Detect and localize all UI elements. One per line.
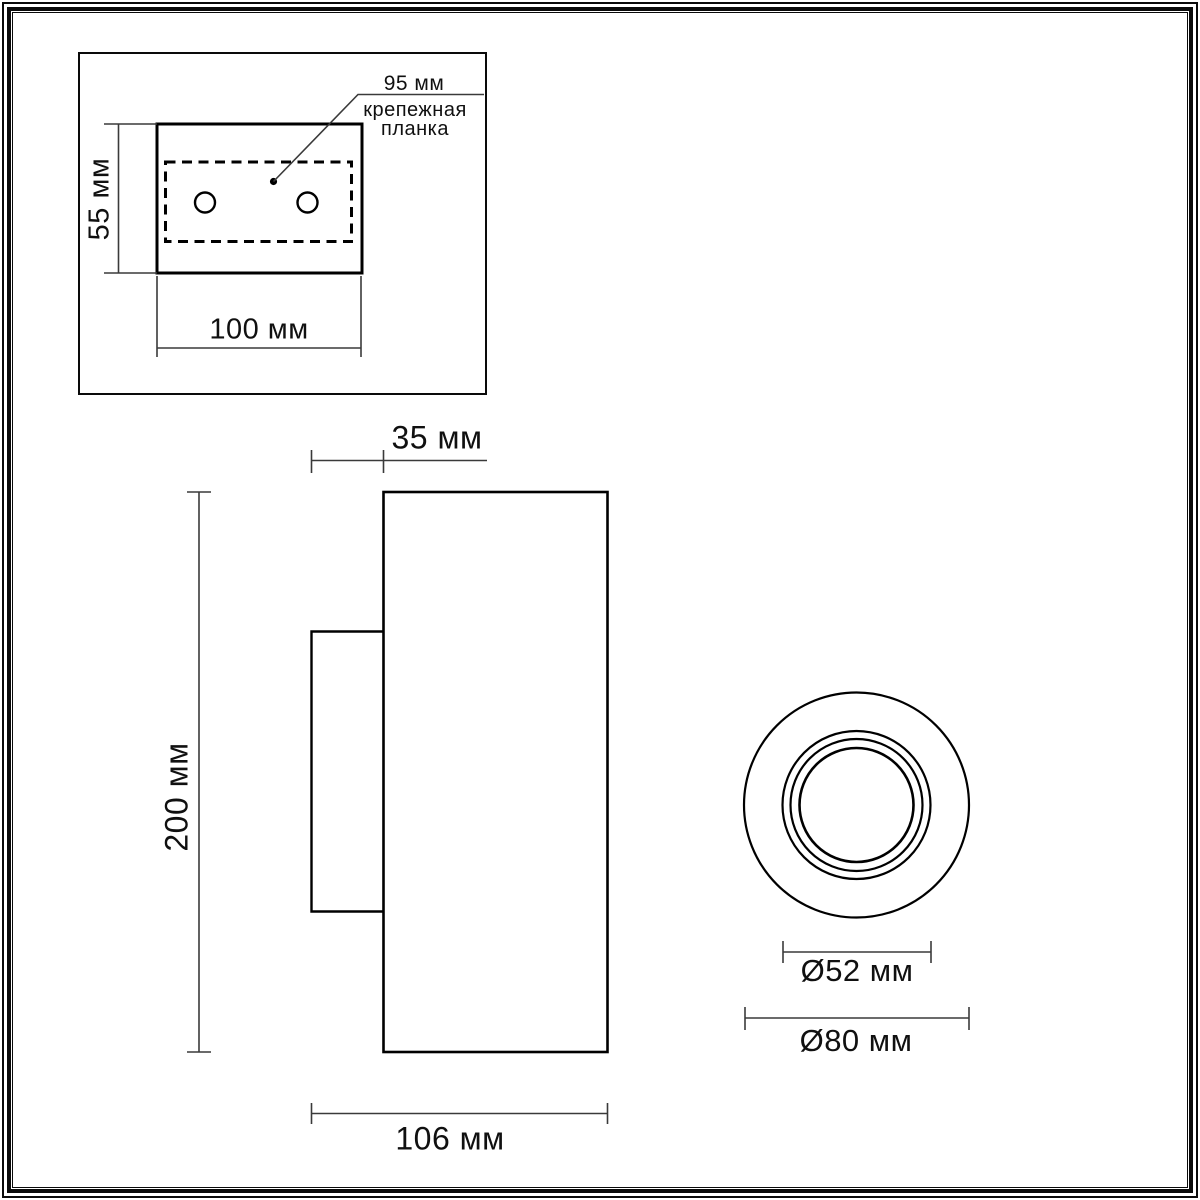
mounting-bar-dashed-outline	[166, 162, 352, 242]
mounting-plate-outline	[157, 124, 362, 273]
label-inner-diameter-52mm: Ø52 мм	[801, 953, 914, 989]
side-view	[187, 450, 608, 1124]
label-mounting-bar-line2: планка	[363, 120, 467, 139]
front-bezel-outer-circle	[783, 731, 931, 879]
label-body-depth-106mm: 106 мм	[395, 1121, 504, 1158]
side-body-outline	[384, 492, 608, 1052]
label-outer-diameter-80mm: Ø80 мм	[800, 1023, 913, 1059]
label-plate-height-55mm: 55 мм	[84, 158, 117, 241]
front-outer-circle	[744, 693, 969, 918]
label-bracket-depth-35mm: 35 мм	[392, 420, 483, 457]
screw-hole-right	[298, 193, 318, 213]
technical-drawing-page: 95 мм крепежная планка 55 мм 100 мм 35 м…	[0, 0, 1200, 1200]
side-bracket-outline	[312, 632, 384, 912]
screw-hole-left	[195, 193, 215, 213]
label-body-height-200mm: 200 мм	[159, 742, 196, 851]
label-bar-length-95mm: 95 мм	[384, 72, 445, 96]
label-mounting-bar: крепежная планка	[363, 101, 467, 139]
front-bezel-inner-circle	[791, 739, 923, 871]
front-opening-circle	[800, 748, 914, 862]
label-plate-width-100mm: 100 мм	[209, 314, 308, 347]
drawing-canvas	[0, 0, 1200, 1200]
